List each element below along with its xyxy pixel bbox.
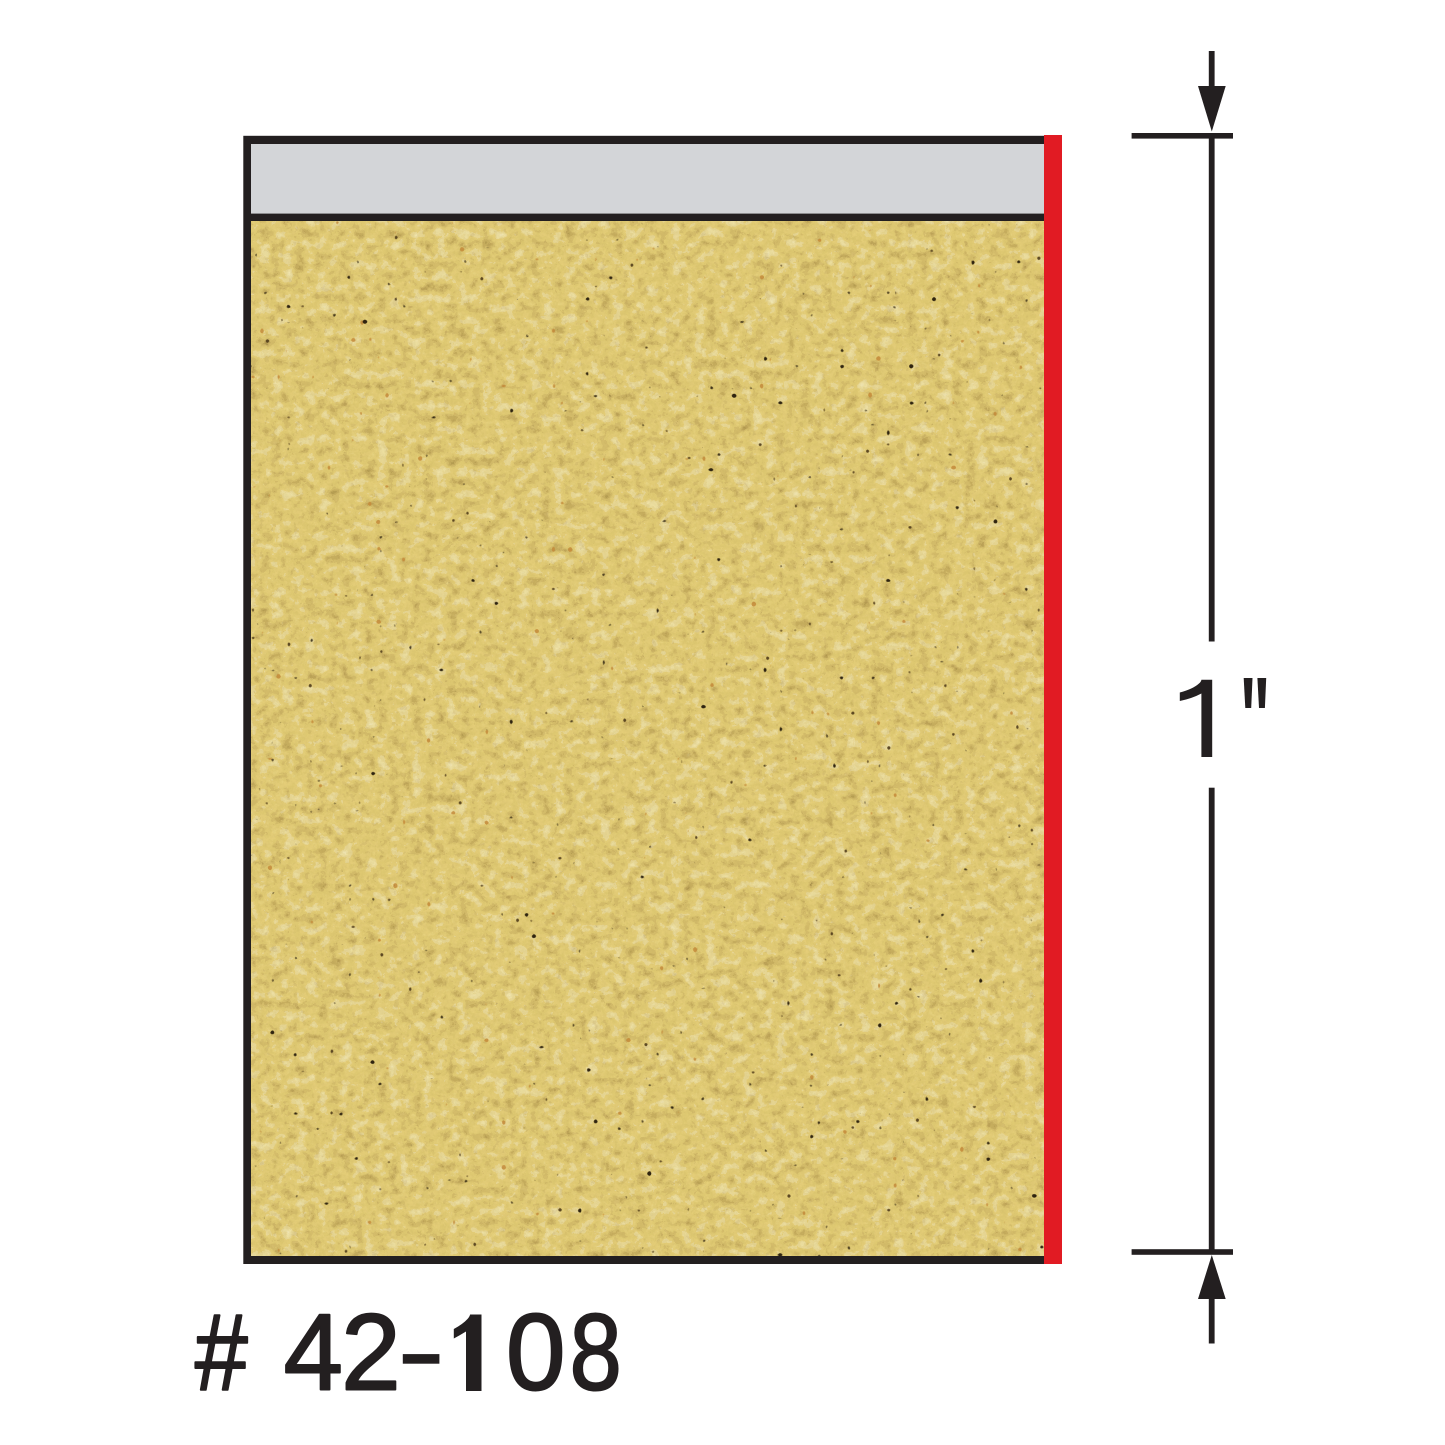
svg-text:4: 4	[284, 1293, 343, 1414]
svg-text:8: 8	[570, 1293, 622, 1414]
svg-text:0: 0	[506, 1293, 566, 1414]
svg-text:#: #	[195, 1293, 248, 1414]
svg-text:2: 2	[341, 1293, 401, 1414]
